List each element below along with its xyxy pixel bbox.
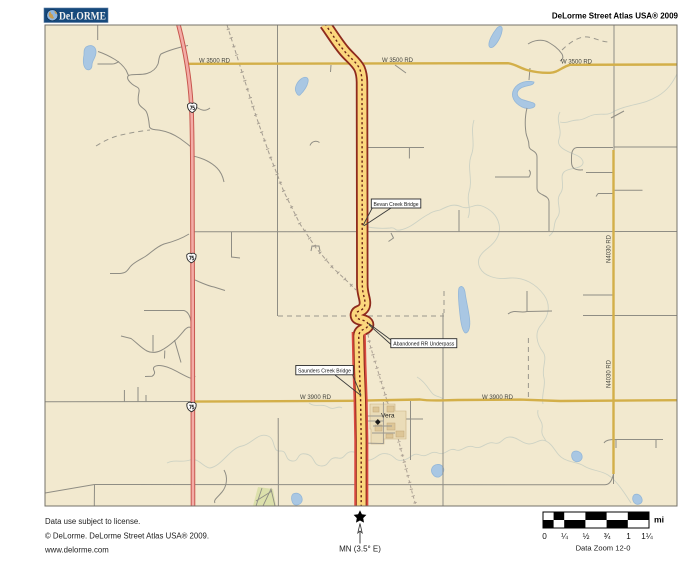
svg-text:W 3500 RD: W 3500 RD — [561, 60, 593, 66]
svg-text:¼: ¼ — [561, 532, 568, 541]
svg-text:DeLorme Street Atlas USA® 2009: DeLorme Street Atlas USA® 2009 — [552, 12, 679, 21]
svg-text:1¼: 1¼ — [641, 532, 653, 541]
svg-text:www.delorme.com: www.delorme.com — [44, 546, 109, 555]
svg-text:DeLORME: DeLORME — [59, 9, 106, 23]
svg-text:© DeLorme. DeLorme Street Atla: © DeLorme. DeLorme Street Atlas USA® 200… — [45, 532, 209, 541]
svg-text:N4030 RD: N4030 RD — [607, 359, 613, 388]
svg-text:Vera: Vera — [381, 413, 395, 420]
svg-text:W 3900 RD: W 3900 RD — [482, 395, 514, 401]
svg-text:N4030 RD: N4030 RD — [607, 234, 613, 263]
svg-text:Abandoned RR Underpass: Abandoned RR Underpass — [393, 342, 454, 348]
svg-text:1: 1 — [626, 532, 631, 541]
svg-text:½: ½ — [583, 532, 590, 541]
svg-text:mi: mi — [654, 515, 664, 525]
svg-text:Data use subject to license.: Data use subject to license. — [45, 517, 140, 526]
svg-text:Bevan Creek Bridge: Bevan Creek Bridge — [374, 202, 420, 208]
svg-text:Saunders Creek Bridge: Saunders Creek Bridge — [298, 369, 352, 375]
svg-text:W 3900 RD: W 3900 RD — [300, 395, 332, 401]
svg-text:0: 0 — [542, 532, 547, 541]
svg-text:W 3500 RD: W 3500 RD — [382, 58, 414, 64]
svg-text:W 3500 RD: W 3500 RD — [199, 58, 231, 64]
svg-text:¾: ¾ — [604, 532, 611, 541]
svg-text:MN (3.5° E): MN (3.5° E) — [339, 545, 381, 554]
svg-text:Data Zoom 12-0: Data Zoom 12-0 — [576, 544, 631, 553]
